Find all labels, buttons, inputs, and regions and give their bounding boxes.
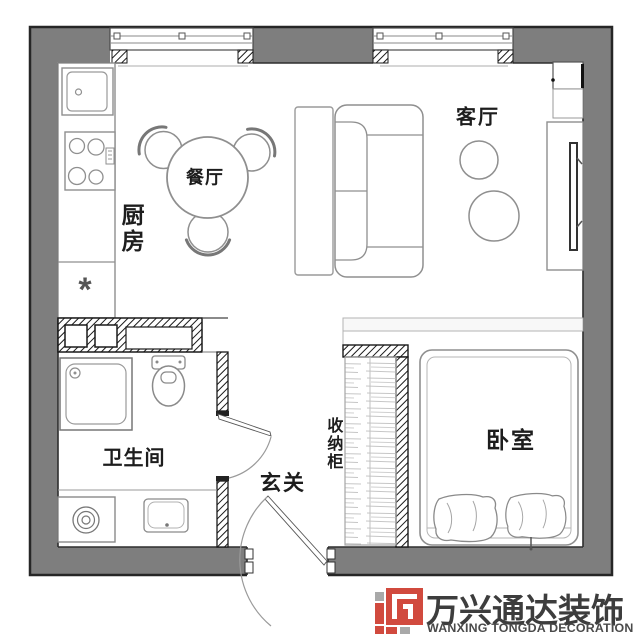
label-living-room: 客厅	[456, 108, 500, 129]
door-jamb-cap	[216, 476, 229, 481]
label-dining-room: 餐厅	[186, 169, 224, 188]
pouf-small	[460, 141, 498, 179]
bathroom-wall-segment	[217, 352, 228, 411]
logo-brand-english: WANXING TONGDA DECORATION	[427, 621, 633, 635]
window-mullion	[114, 33, 120, 39]
door-jamb	[245, 549, 253, 559]
window-jamb	[112, 50, 127, 63]
duct-box	[65, 325, 87, 347]
stove-controls	[106, 148, 114, 164]
window-living	[373, 28, 513, 66]
kitchen-stove	[65, 132, 115, 190]
bathroom-wall-segment	[217, 481, 228, 547]
window-mullion	[436, 33, 442, 39]
closet-wall	[343, 345, 408, 357]
label-entry: 玄关	[260, 473, 306, 495]
bedroom-beam	[343, 318, 583, 331]
door-jamb	[245, 562, 253, 573]
window-mullion	[244, 33, 250, 39]
window-jamb	[498, 50, 513, 63]
door-jamb	[327, 549, 335, 559]
washing-machine	[58, 497, 115, 542]
window-mullion	[503, 33, 509, 39]
window-jamb	[373, 50, 388, 63]
tv-cabinet	[547, 122, 583, 270]
door-leaf	[218, 414, 271, 436]
label-bedroom: 卧室	[486, 428, 536, 452]
toilet	[152, 356, 185, 406]
floorplan-canvas: *	[0, 0, 640, 641]
kitchen-sink	[62, 68, 113, 115]
sofa	[335, 105, 423, 277]
asterisk-symbol: *	[78, 271, 92, 309]
floorplan-drawing: *	[0, 0, 640, 641]
pouf-large	[469, 191, 519, 241]
window-mullion	[179, 33, 185, 39]
washbasin	[144, 499, 188, 532]
closet-wall	[396, 357, 408, 547]
label-storage-cabinet: 收纳柜	[324, 417, 341, 471]
label-kitchen: 厨房	[119, 203, 143, 255]
watermark-logo: 万兴通达装饰 WANXING TONGDA DECORATION	[372, 584, 630, 638]
pillow	[506, 494, 566, 539]
tv	[570, 143, 577, 250]
bathroom-door	[218, 414, 271, 478]
duct-box	[95, 325, 117, 347]
logo-mark-icon	[372, 584, 422, 636]
shower	[60, 358, 132, 430]
label-bathroom: 卫生间	[103, 449, 166, 470]
window-mullion	[377, 33, 383, 39]
dining-set	[139, 127, 275, 255]
utility-shaft	[551, 62, 583, 118]
window-jamb	[238, 50, 253, 63]
cistern-shelf	[126, 327, 192, 349]
entry-door	[240, 496, 335, 626]
pillow	[434, 495, 497, 542]
door-leaf	[265, 496, 327, 565]
door-jamb	[327, 562, 335, 573]
coffee-table	[295, 107, 333, 275]
window-kitchen	[110, 28, 253, 66]
